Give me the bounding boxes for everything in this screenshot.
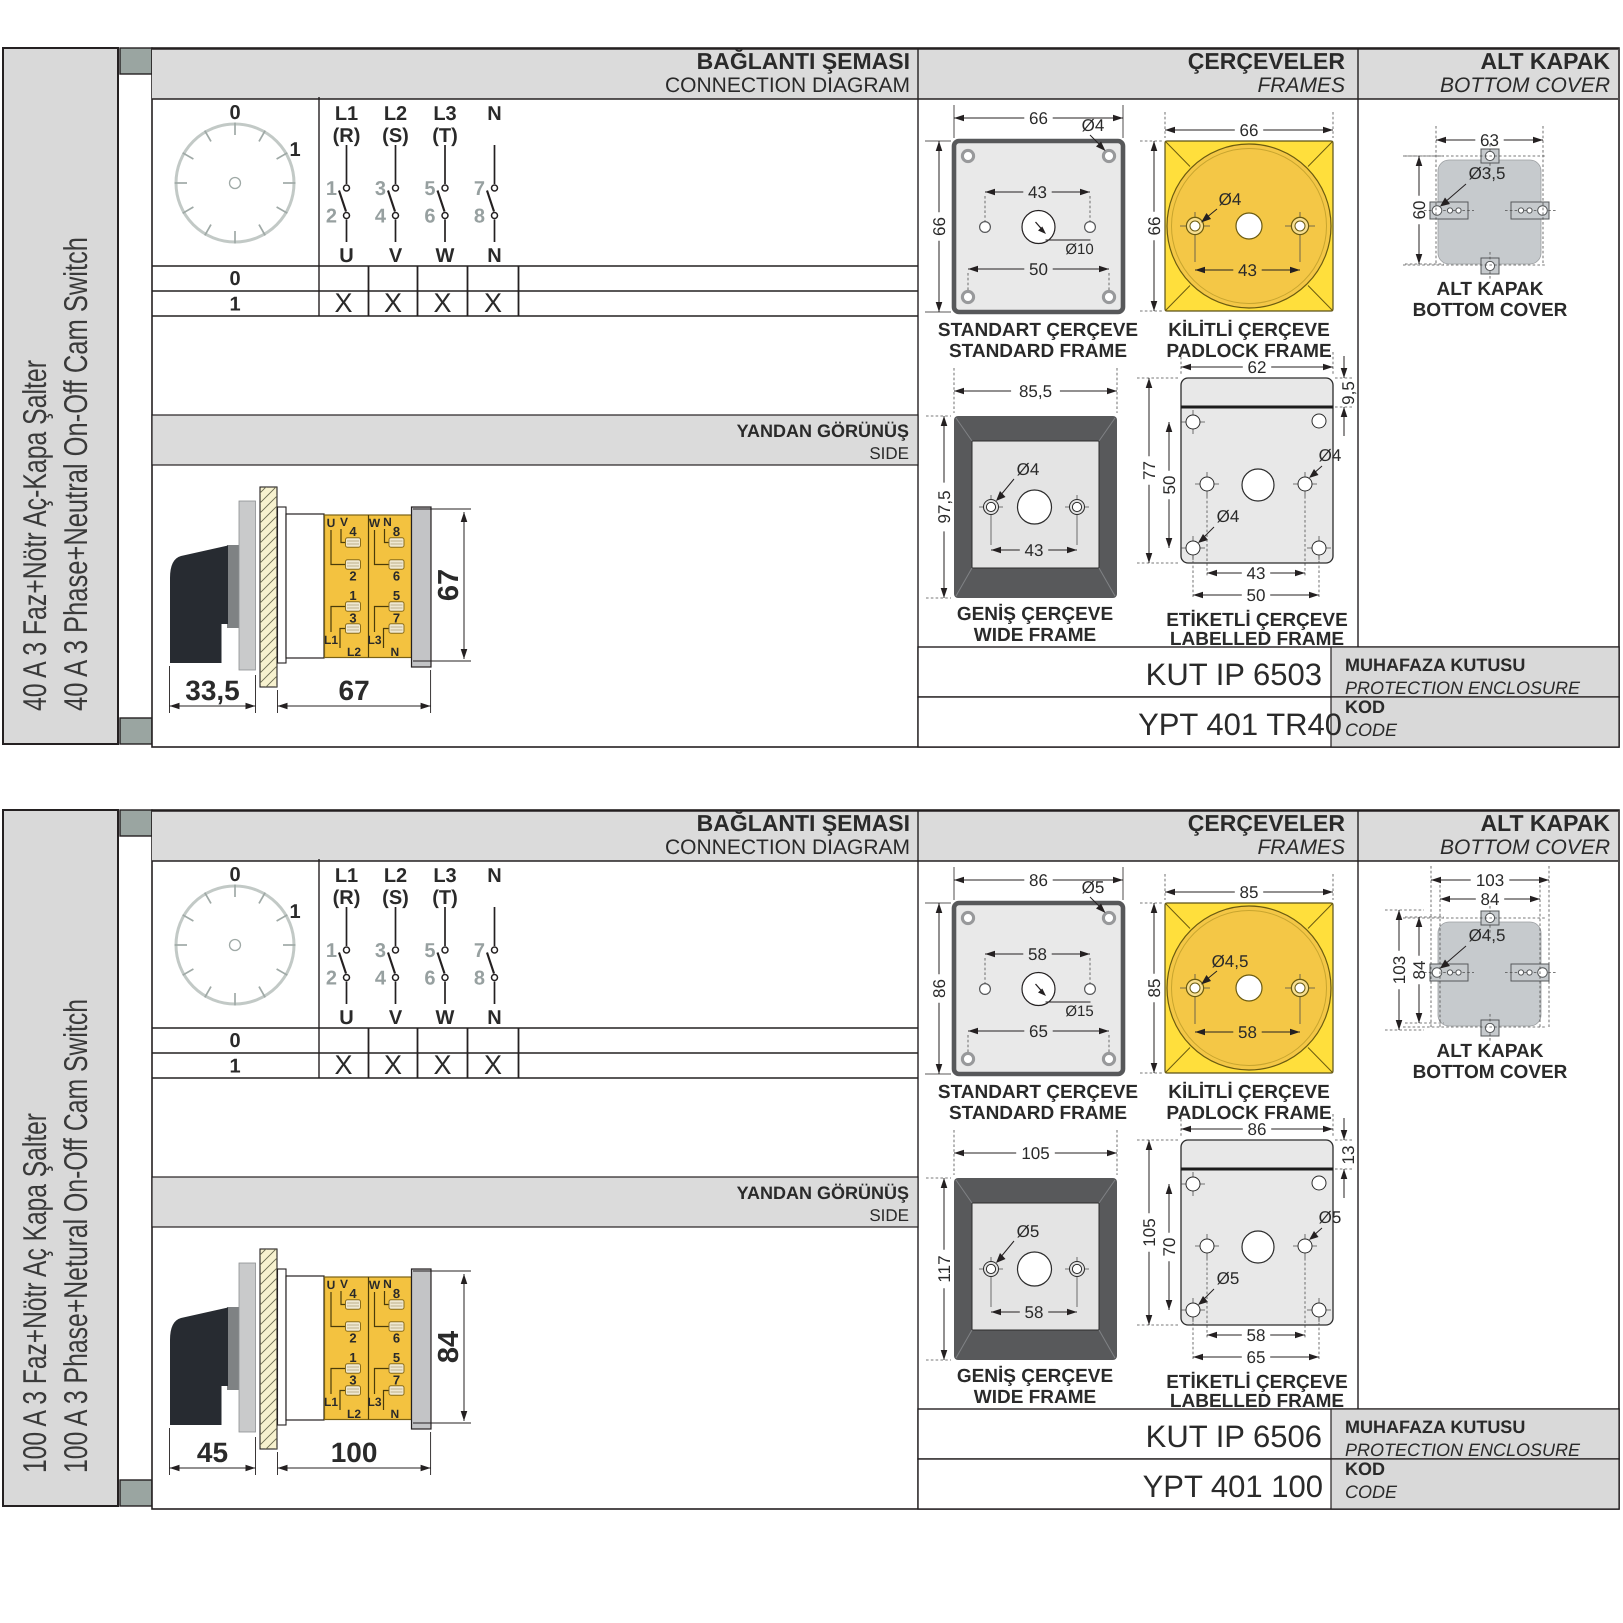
svg-text:2: 2 [326, 206, 337, 228]
svg-text:X: X [433, 1050, 451, 1080]
svg-text:L1: L1 [324, 1395, 338, 1409]
svg-text:L3: L3 [367, 1395, 381, 1409]
svg-text:58: 58 [1025, 1303, 1044, 1322]
svg-text:STANDART ÇERÇEVE: STANDART ÇERÇEVE [938, 1082, 1138, 1103]
svg-text:ÇERÇEVELER: ÇERÇEVELER [1188, 48, 1346, 74]
svg-text:KİLİTLİ ÇERÇEVE: KİLİTLİ ÇERÇEVE [1168, 319, 1330, 341]
svg-text:ÇERÇEVELER: ÇERÇEVELER [1188, 810, 1346, 836]
svg-text:67: 67 [339, 675, 370, 706]
svg-text:105: 105 [1140, 1218, 1159, 1246]
svg-text:V: V [340, 515, 348, 529]
svg-text:43: 43 [1028, 183, 1047, 202]
svg-text:6: 6 [424, 206, 435, 228]
svg-text:ALT KAPAK: ALT KAPAK [1481, 48, 1611, 74]
svg-text:0: 0 [229, 268, 240, 290]
svg-text:7: 7 [474, 940, 485, 962]
svg-text:STANDART ÇERÇEVE: STANDART ÇERÇEVE [938, 320, 1138, 341]
svg-text:X: X [384, 288, 402, 318]
svg-text:Ø5: Ø5 [1082, 878, 1105, 897]
svg-text:WIDE FRAME: WIDE FRAME [974, 1387, 1096, 1408]
svg-text:50: 50 [1029, 260, 1048, 279]
svg-text:Ø10: Ø10 [1065, 241, 1093, 258]
svg-text:7: 7 [393, 611, 400, 626]
svg-text:50: 50 [1247, 586, 1266, 605]
svg-text:N: N [487, 865, 501, 887]
svg-text:(S): (S) [382, 125, 409, 147]
svg-text:84: 84 [1410, 961, 1429, 980]
svg-text:43: 43 [1247, 564, 1266, 583]
svg-text:45: 45 [197, 1437, 228, 1468]
svg-text:Ø15: Ø15 [1065, 1003, 1093, 1020]
svg-text:X: X [484, 1050, 502, 1080]
svg-text:9,5: 9,5 [1339, 381, 1358, 405]
svg-text:WIDE FRAME: WIDE FRAME [974, 625, 1096, 646]
svg-text:W: W [369, 516, 381, 530]
svg-text:BOTTOM COVER: BOTTOM COVER [1413, 1062, 1568, 1083]
svg-text:(T): (T) [432, 125, 458, 147]
svg-text:0: 0 [229, 102, 240, 124]
svg-text:0: 0 [229, 864, 240, 886]
svg-text:103: 103 [1476, 871, 1504, 890]
svg-text:PROTECTION ENCLOSURE: PROTECTION ENCLOSURE [1345, 678, 1581, 698]
svg-text:L3: L3 [433, 103, 456, 125]
svg-text:V: V [389, 1007, 403, 1029]
svg-text:8: 8 [393, 1286, 400, 1301]
svg-text:Ø4: Ø4 [1319, 446, 1342, 465]
svg-text:CODE: CODE [1345, 1482, 1398, 1502]
svg-text:3: 3 [375, 940, 386, 962]
svg-text:85: 85 [1240, 883, 1259, 902]
svg-text:6: 6 [393, 1331, 400, 1346]
svg-text:58: 58 [1247, 1326, 1266, 1345]
svg-text:ALT KAPAK: ALT KAPAK [1437, 279, 1544, 300]
svg-text:N: N [391, 645, 400, 659]
svg-text:58: 58 [1238, 1023, 1257, 1042]
svg-text:CONNECTION DIAGRAM: CONNECTION DIAGRAM [665, 74, 910, 97]
svg-text:85: 85 [1145, 979, 1164, 998]
svg-text:X: X [484, 288, 502, 318]
svg-text:65: 65 [1247, 1348, 1266, 1367]
svg-text:W: W [436, 1007, 455, 1029]
svg-text:1: 1 [229, 1056, 240, 1078]
svg-text:Ø5: Ø5 [1319, 1208, 1342, 1227]
svg-text:BAĞLANTI ŞEMASI: BAĞLANTI ŞEMASI [697, 810, 910, 836]
svg-text:3: 3 [349, 1373, 356, 1388]
svg-text:KUT IP 6506: KUT IP 6506 [1146, 1419, 1322, 1454]
svg-text:GENİŞ ÇERÇEVE: GENİŞ ÇERÇEVE [957, 603, 1113, 625]
svg-text:103: 103 [1390, 956, 1409, 984]
svg-text:1: 1 [289, 901, 300, 923]
svg-text:MUHAFAZA KUTUSU: MUHAFAZA KUTUSU [1345, 655, 1525, 675]
svg-text:FRAMES: FRAMES [1257, 836, 1345, 859]
svg-text:X: X [433, 288, 451, 318]
svg-text:Ø4: Ø4 [1217, 507, 1240, 526]
svg-text:X: X [384, 1050, 402, 1080]
svg-text:7: 7 [474, 178, 485, 200]
svg-text:1: 1 [349, 1350, 356, 1365]
svg-text:CODE: CODE [1345, 720, 1398, 740]
svg-text:U: U [339, 1007, 353, 1029]
svg-text:5: 5 [424, 940, 435, 962]
svg-text:BOTTOM COVER: BOTTOM COVER [1413, 300, 1568, 321]
svg-text:3: 3 [375, 178, 386, 200]
svg-text:43: 43 [1238, 261, 1257, 280]
svg-text:U: U [339, 245, 353, 267]
svg-text:33,5: 33,5 [185, 675, 240, 706]
svg-text:PROTECTION ENCLOSURE: PROTECTION ENCLOSURE [1345, 1440, 1581, 1460]
svg-text:65: 65 [1029, 1022, 1048, 1041]
svg-text:5: 5 [393, 588, 400, 603]
svg-text:Ø4: Ø4 [1017, 460, 1040, 479]
svg-text:N: N [383, 1277, 392, 1291]
svg-text:40 A 3 Phase+Neutral On-Off Ca: 40 A 3 Phase+Neutral On-Off Cam Switch [57, 237, 94, 711]
svg-text:ALT KAPAK: ALT KAPAK [1437, 1041, 1544, 1062]
svg-text:84: 84 [1481, 890, 1500, 909]
svg-text:58: 58 [1028, 945, 1047, 964]
svg-text:2: 2 [349, 569, 356, 584]
svg-text:66: 66 [1029, 109, 1048, 128]
svg-text:(R): (R) [333, 125, 361, 147]
svg-text:1: 1 [326, 940, 337, 962]
svg-text:X: X [334, 288, 352, 318]
svg-text:U: U [327, 1278, 336, 1292]
svg-text:4: 4 [375, 206, 387, 228]
svg-text:N: N [487, 1007, 501, 1029]
svg-text:1: 1 [229, 294, 240, 316]
svg-text:L2: L2 [347, 1407, 361, 1421]
svg-text:YANDAN GÖRÜNÜŞ: YANDAN GÖRÜNÜŞ [737, 1183, 909, 1203]
svg-text:YPT 401 100: YPT 401 100 [1143, 1469, 1323, 1504]
svg-text:86: 86 [1248, 1120, 1267, 1139]
svg-text:1: 1 [326, 178, 337, 200]
svg-text:2: 2 [349, 1331, 356, 1346]
svg-text:L1: L1 [335, 103, 358, 125]
svg-text:ALT KAPAK: ALT KAPAK [1481, 810, 1611, 836]
svg-text:2: 2 [326, 968, 337, 990]
svg-text:X: X [334, 1050, 352, 1080]
svg-text:KUT IP 6503: KUT IP 6503 [1146, 657, 1322, 692]
svg-text:W: W [369, 1278, 381, 1292]
svg-text:3: 3 [349, 611, 356, 626]
svg-text:Ø4: Ø4 [1082, 116, 1105, 135]
svg-text:ETİKETLİ ÇERÇEVE: ETİKETLİ ÇERÇEVE [1166, 609, 1348, 631]
svg-text:SIDE: SIDE [869, 444, 909, 463]
svg-text:100 A 3 Faz+Nötr Aç Kapa Şalte: 100 A 3 Faz+Nötr Aç Kapa Şalter [16, 1113, 53, 1473]
svg-text:50: 50 [1160, 476, 1179, 495]
svg-text:BAĞLANTI ŞEMASI: BAĞLANTI ŞEMASI [697, 48, 910, 74]
svg-text:63: 63 [1480, 131, 1499, 150]
svg-text:N: N [383, 515, 392, 529]
svg-text:100: 100 [331, 1437, 378, 1468]
svg-text:7: 7 [393, 1373, 400, 1388]
svg-text:62: 62 [1248, 358, 1267, 377]
svg-text:86: 86 [930, 979, 949, 998]
svg-text:85,5: 85,5 [1019, 382, 1052, 401]
svg-text:5: 5 [424, 178, 435, 200]
svg-text:STANDARD FRAME: STANDARD FRAME [949, 341, 1127, 362]
svg-text:L1: L1 [335, 865, 358, 887]
svg-text:(T): (T) [432, 887, 458, 909]
svg-text:L1: L1 [324, 633, 338, 647]
svg-text:4: 4 [349, 1286, 357, 1301]
svg-text:Ø5: Ø5 [1017, 1222, 1040, 1241]
svg-text:KİLİTLİ ÇERÇEVE: KİLİTLİ ÇERÇEVE [1168, 1081, 1330, 1103]
svg-text:CONNECTION DIAGRAM: CONNECTION DIAGRAM [665, 836, 910, 859]
svg-text:Ø4,5: Ø4,5 [1469, 926, 1506, 945]
svg-text:8: 8 [474, 206, 485, 228]
svg-text:MUHAFAZA KUTUSU: MUHAFAZA KUTUSU [1345, 1417, 1525, 1437]
svg-text:N: N [487, 245, 501, 267]
svg-text:13: 13 [1339, 1146, 1358, 1165]
svg-text:Ø5: Ø5 [1217, 1269, 1240, 1288]
svg-text:W: W [436, 245, 455, 267]
svg-text:1: 1 [289, 139, 300, 161]
svg-text:97,5: 97,5 [935, 490, 954, 523]
svg-text:Ø4: Ø4 [1219, 190, 1242, 209]
svg-text:4: 4 [349, 524, 357, 539]
svg-text:0: 0 [229, 1030, 240, 1052]
svg-text:40 A 3 Faz+Nötr Aç-Kapa Şalter: 40 A 3 Faz+Nötr Aç-Kapa Şalter [16, 360, 53, 711]
svg-text:GENİŞ ÇERÇEVE: GENİŞ ÇERÇEVE [957, 1365, 1113, 1387]
svg-text:Ø3,5: Ø3,5 [1469, 164, 1506, 183]
svg-text:STANDARD FRAME: STANDARD FRAME [949, 1103, 1127, 1124]
svg-text:(R): (R) [333, 887, 361, 909]
svg-text:100 A 3 Phase+Netural On-Off C: 100 A 3 Phase+Netural On-Off Cam Switch [57, 999, 94, 1473]
svg-text:66: 66 [930, 217, 949, 236]
svg-text:U: U [327, 516, 336, 530]
svg-text:L3: L3 [367, 633, 381, 647]
svg-text:1: 1 [349, 588, 356, 603]
svg-text:117: 117 [935, 1255, 954, 1282]
svg-text:60: 60 [1410, 201, 1429, 220]
svg-text:YPT 401 TR40: YPT 401 TR40 [1138, 707, 1342, 742]
svg-text:L2: L2 [384, 865, 407, 887]
svg-text:105: 105 [1021, 1144, 1049, 1163]
svg-text:84: 84 [433, 1331, 465, 1363]
svg-text:5: 5 [393, 1350, 400, 1365]
svg-text:V: V [389, 245, 403, 267]
svg-text:8: 8 [393, 524, 400, 539]
svg-text:86: 86 [1029, 871, 1048, 890]
svg-text:SIDE: SIDE [869, 1206, 909, 1225]
svg-text:ETİKETLİ ÇERÇEVE: ETİKETLİ ÇERÇEVE [1166, 1371, 1348, 1393]
svg-text:66: 66 [1240, 121, 1259, 140]
svg-text:43: 43 [1025, 541, 1044, 560]
svg-text:70: 70 [1160, 1238, 1179, 1257]
svg-text:Ø4,5: Ø4,5 [1212, 952, 1249, 971]
svg-text:6: 6 [393, 569, 400, 584]
svg-text:KOD: KOD [1345, 1459, 1385, 1479]
svg-text:FRAMES: FRAMES [1257, 74, 1345, 97]
svg-text:L2: L2 [384, 103, 407, 125]
svg-text:V: V [340, 1277, 348, 1291]
svg-text:L3: L3 [433, 865, 456, 887]
svg-text:67: 67 [433, 569, 465, 601]
svg-text:66: 66 [1145, 217, 1164, 236]
svg-text:N: N [487, 103, 501, 125]
svg-text:N: N [391, 1407, 400, 1421]
svg-text:KOD: KOD [1345, 697, 1385, 717]
svg-text:YANDAN GÖRÜNÜŞ: YANDAN GÖRÜNÜŞ [737, 421, 909, 441]
svg-text:(S): (S) [382, 887, 409, 909]
svg-text:BOTTOM COVER: BOTTOM COVER [1440, 836, 1610, 859]
svg-text:L2: L2 [347, 645, 361, 659]
svg-text:77: 77 [1140, 461, 1159, 480]
svg-text:8: 8 [474, 968, 485, 990]
svg-text:BOTTOM COVER: BOTTOM COVER [1440, 74, 1610, 97]
svg-text:4: 4 [375, 968, 387, 990]
svg-text:6: 6 [424, 968, 435, 990]
